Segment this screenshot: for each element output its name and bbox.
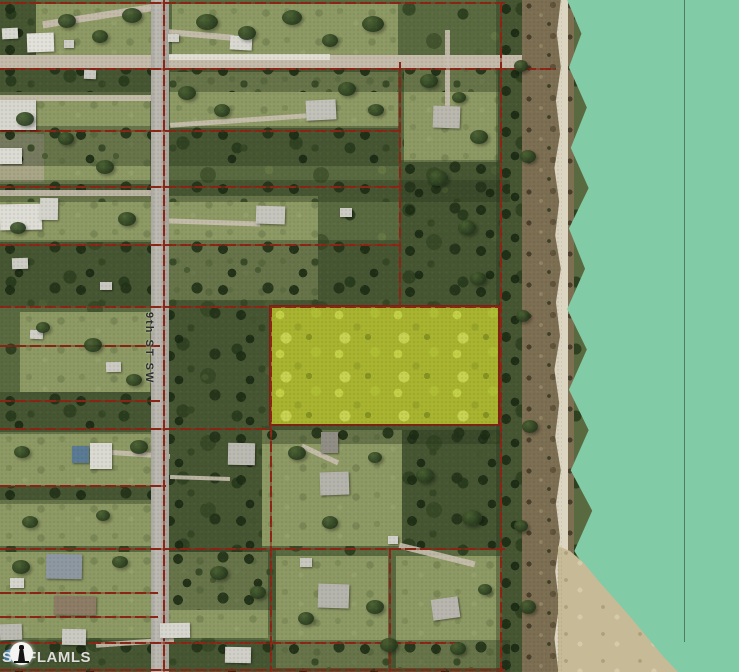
tree — [366, 600, 384, 614]
house-roof — [320, 472, 350, 496]
house-roof — [27, 33, 55, 53]
tree — [178, 86, 196, 100]
shed-roof — [64, 40, 74, 48]
street-label-9th-st-sw: 9th ST SW — [143, 312, 155, 384]
house-roof — [90, 443, 112, 469]
lighthouse-beacon — [19, 645, 24, 649]
tree — [214, 104, 230, 117]
tree — [338, 82, 356, 96]
tree — [36, 322, 50, 333]
barn-roof — [321, 432, 338, 453]
parcel-boundary-line — [0, 616, 158, 618]
tree — [416, 468, 434, 483]
shed-roof — [10, 578, 24, 588]
parcel-boundary-line — [0, 130, 400, 132]
pool-enclosure — [72, 446, 89, 463]
house-roof — [2, 28, 19, 40]
house-roof — [318, 583, 350, 608]
tree — [92, 30, 108, 43]
woods — [0, 126, 400, 166]
highlighted-parcel — [269, 305, 500, 426]
shed-roof — [84, 70, 96, 79]
parcel-boundary-line — [163, 0, 165, 672]
parcel-boundary-line — [270, 306, 272, 672]
house-roof — [0, 148, 22, 164]
shed-roof — [100, 282, 112, 290]
parcel-boundary-line — [500, 2, 502, 672]
tree — [462, 510, 482, 526]
house-roof — [431, 596, 461, 621]
house-roof — [40, 198, 58, 220]
tree — [112, 556, 128, 568]
tree — [420, 74, 438, 88]
parcel-boundary-line — [0, 345, 160, 347]
house-roof — [54, 596, 96, 616]
tree — [16, 112, 34, 126]
parcel-boundary-line — [0, 186, 400, 188]
house-roof — [305, 99, 336, 121]
tree — [362, 16, 384, 32]
tree — [368, 452, 382, 463]
tree — [478, 584, 492, 595]
parcel-boundary-line — [0, 669, 505, 671]
tree — [196, 14, 218, 30]
woods — [402, 430, 502, 550]
lighthouse-tower — [18, 649, 25, 661]
pool-screen-roof — [46, 554, 82, 580]
tree — [288, 446, 306, 460]
parcel-boundary-line — [0, 592, 158, 594]
tree — [298, 612, 314, 625]
shed-roof — [168, 34, 179, 42]
parcel-boundary-line — [0, 306, 500, 308]
tree — [126, 374, 142, 386]
dirt-road-light-segment — [160, 54, 330, 60]
house-roof — [12, 258, 28, 270]
tree — [12, 560, 30, 574]
parcel-boundary-line — [0, 2, 505, 4]
woods — [0, 240, 400, 306]
tree — [470, 130, 488, 144]
tree — [10, 222, 26, 234]
tree — [450, 642, 466, 655]
tree — [22, 516, 38, 528]
parcel-boundary-line — [389, 548, 391, 672]
parcel-boundary-line — [0, 485, 166, 487]
tree — [470, 272, 486, 285]
lighthouse-icon — [10, 642, 33, 665]
aerial-map: 9th ST SW SWFLAMLS — [0, 0, 739, 672]
woods — [168, 550, 276, 610]
parcel-boundary-line — [0, 428, 270, 430]
parcel-boundary-line — [0, 400, 160, 402]
woods — [400, 160, 500, 306]
tree — [96, 160, 114, 174]
tree — [520, 600, 536, 614]
tree — [458, 220, 476, 235]
shed-roof — [340, 208, 352, 217]
tree — [322, 516, 338, 529]
tree — [118, 212, 136, 226]
tree — [250, 586, 266, 599]
tree — [520, 150, 536, 163]
tree — [58, 14, 76, 28]
woods — [0, 486, 166, 504]
parcel-boundary-line — [0, 548, 505, 550]
tree — [514, 520, 528, 532]
tree — [522, 420, 538, 433]
imagery-seam-line — [684, 0, 685, 642]
tree — [238, 26, 256, 40]
tree — [368, 104, 384, 116]
lighthouse-base — [14, 661, 29, 663]
house-roof — [106, 362, 121, 372]
house-roof — [225, 647, 251, 663]
shed-roof — [388, 536, 398, 544]
tree — [96, 510, 110, 521]
watermark: SWFLAMLS — [2, 641, 222, 669]
tree — [58, 132, 74, 145]
parcel-boundary-line — [399, 62, 401, 306]
tree — [130, 440, 148, 454]
house-roof — [433, 106, 461, 129]
tree — [380, 638, 398, 652]
tree — [514, 60, 528, 72]
woods — [160, 306, 270, 430]
tree — [282, 10, 302, 25]
house-roof — [0, 624, 22, 641]
tree — [122, 8, 142, 23]
shed-roof — [300, 558, 312, 567]
tree — [84, 338, 102, 352]
woods — [262, 426, 502, 444]
tree — [322, 34, 338, 47]
parcel-boundary-line — [0, 244, 400, 246]
tree — [14, 446, 30, 458]
tree — [452, 92, 466, 103]
tree — [428, 170, 448, 186]
house-roof — [160, 623, 190, 639]
house-roof — [228, 443, 255, 465]
tree — [516, 310, 530, 322]
tree — [210, 566, 228, 580]
house-roof — [256, 205, 286, 224]
driveway — [0, 190, 166, 196]
